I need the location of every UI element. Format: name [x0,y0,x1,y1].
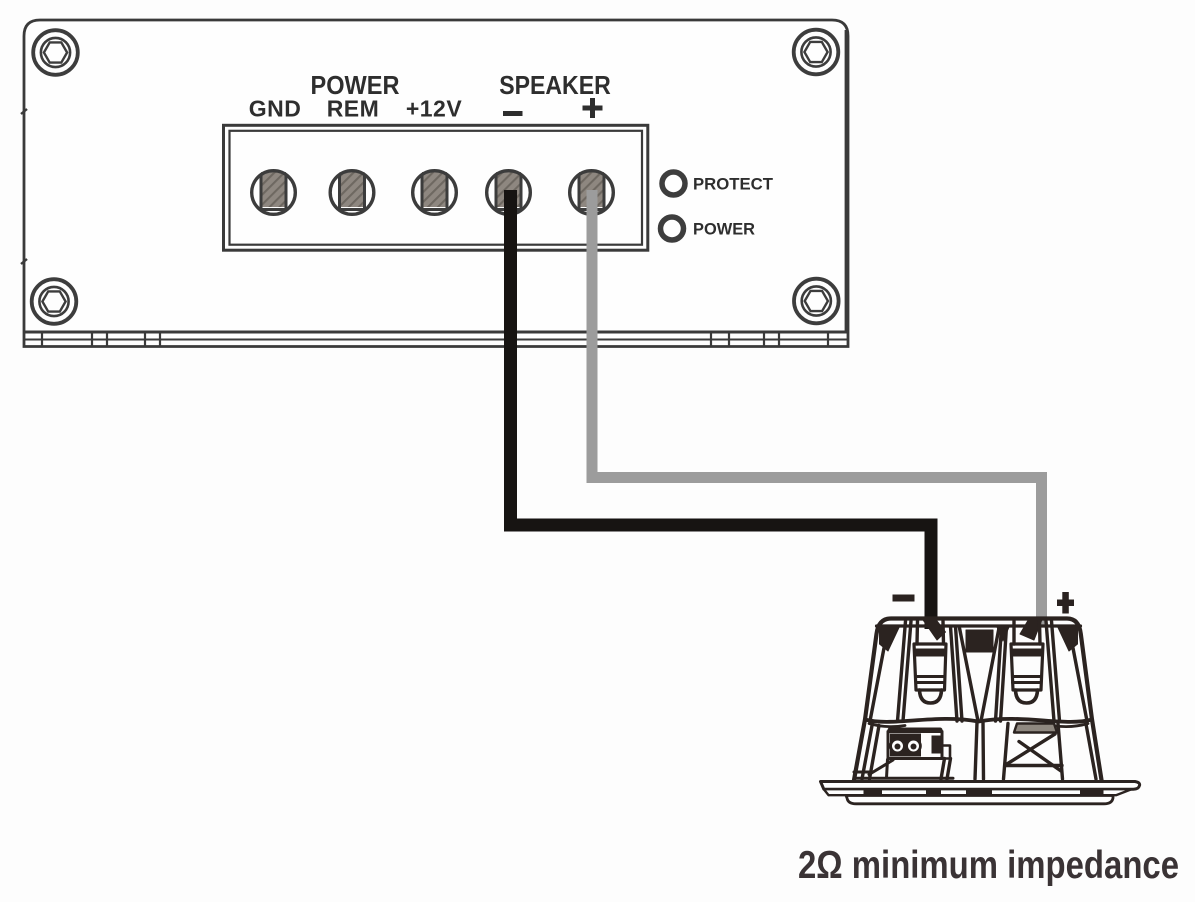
svg-text:SPEAKER: SPEAKER [499,70,611,100]
svg-text:PROTECT: PROTECT [693,175,774,194]
svg-text:REM: REM [327,96,380,122]
svg-text:GND: GND [249,96,302,122]
svg-text:POWER: POWER [693,220,755,239]
svg-text:2Ω minimum impedance: 2Ω minimum impedance [798,844,1179,887]
svg-text:+12V: +12V [406,96,463,122]
